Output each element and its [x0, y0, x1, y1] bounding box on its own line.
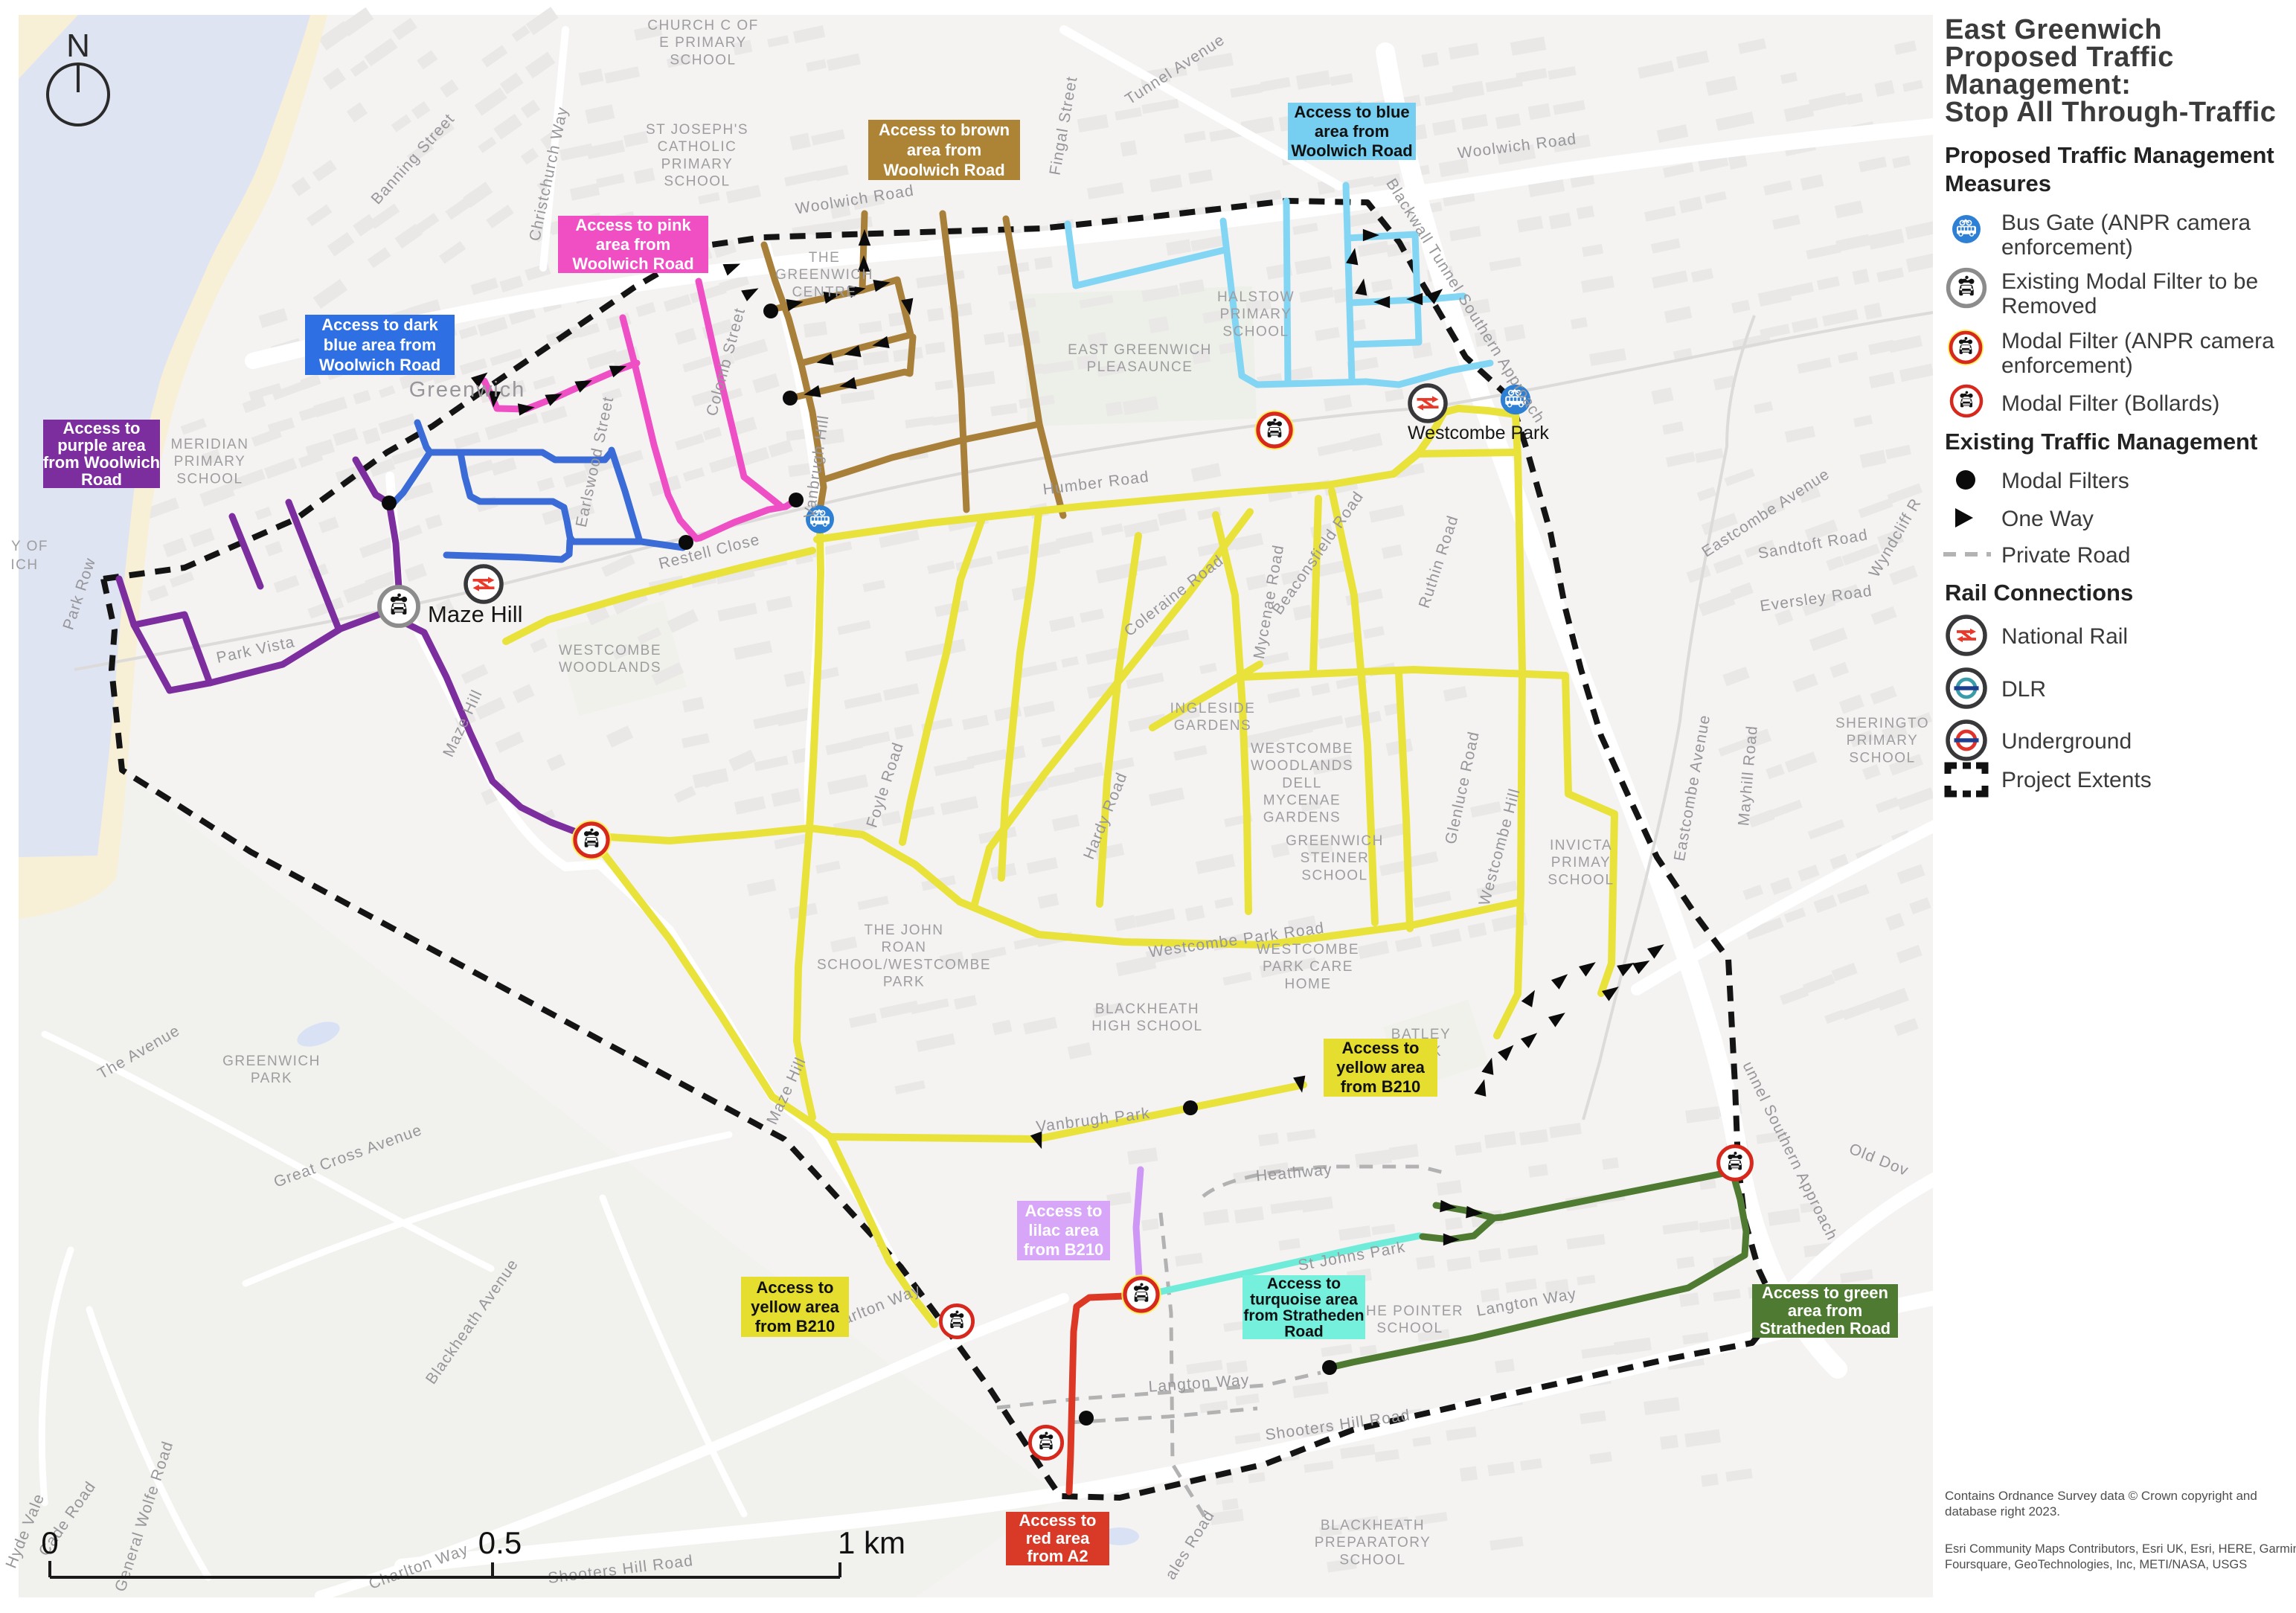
svg-text:0.5: 0.5: [478, 1525, 522, 1560]
svg-text:Maze Hill: Maze Hill: [428, 601, 522, 627]
svg-text:ICH: ICH: [10, 557, 38, 573]
svg-text:1 km: 1 km: [838, 1525, 905, 1560]
svg-text:MERIDIANPRIMARYSCHOOL: MERIDIANPRIMARYSCHOOL: [171, 437, 249, 487]
svg-text:0: 0: [41, 1525, 58, 1560]
svg-text:Access tolilac areafrom B210: Access tolilac areafrom B210: [1024, 1202, 1104, 1259]
svg-text:Westcombe Park: Westcombe Park: [1408, 423, 1549, 443]
svg-text:INVICTAPRIMAYSCHOOL: INVICTAPRIMAYSCHOOL: [1548, 838, 1614, 888]
svg-text:HALSTOWPRIMARYSCHOOL: HALSTOWPRIMARYSCHOOL: [1217, 289, 1295, 339]
svg-text:Access tored areafrom A2: Access tored areafrom A2: [1019, 1511, 1097, 1565]
svg-text:SHERINGTOPRIMARYSCHOOL: SHERINGTOPRIMARYSCHOOL: [1835, 716, 1929, 766]
svg-text:Y OF: Y OF: [11, 539, 48, 554]
svg-text:Access to darkblue area fromWo: Access to darkblue area fromWoolwich Roa…: [319, 315, 440, 374]
svg-text:Access toyellow areafrom B210: Access toyellow areafrom B210: [751, 1278, 839, 1335]
svg-text:Access toyellow areafrom B210: Access toyellow areafrom B210: [1336, 1039, 1425, 1096]
svg-text:Greenwich: Greenwich: [409, 378, 526, 402]
svg-text:N: N: [66, 28, 90, 64]
